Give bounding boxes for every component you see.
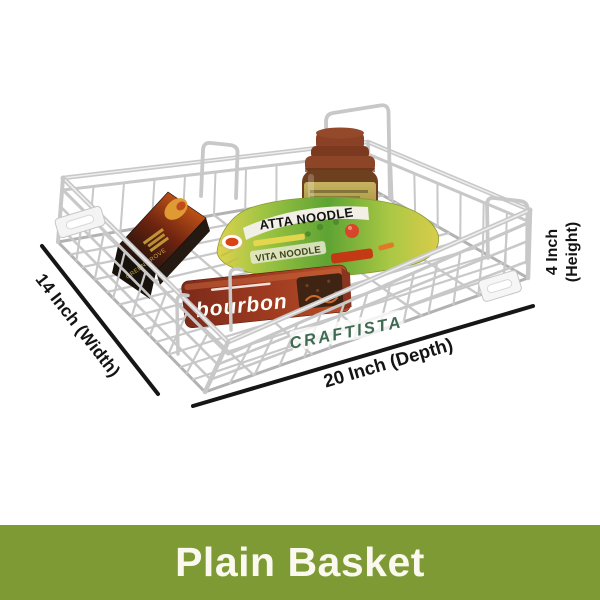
basket-wire xyxy=(414,173,415,213)
basket-wire xyxy=(429,263,437,313)
basket-wire xyxy=(528,210,530,278)
tomato-highlight xyxy=(348,226,352,230)
banner: Plain Basket xyxy=(0,525,600,600)
product-image: GREEN TROVE A xyxy=(0,0,600,600)
brand-logo-center xyxy=(226,238,239,246)
height-dimension-unit: (Height) xyxy=(564,222,581,282)
basket-wire xyxy=(245,168,246,209)
basket-wire xyxy=(214,172,216,215)
jar-knob-top xyxy=(316,128,364,139)
height-dimension-value: 4 Inch xyxy=(544,229,561,275)
pea-graphic xyxy=(305,231,311,237)
basket-wire xyxy=(95,231,105,280)
tomato-graphic xyxy=(345,224,359,238)
jar-label-line xyxy=(310,190,368,193)
basket-illustration: GREEN TROVE A xyxy=(0,0,600,600)
pea-graphic xyxy=(333,219,339,225)
right-bracket xyxy=(478,270,523,303)
pea-graphic xyxy=(317,224,323,230)
basket-wire xyxy=(120,183,124,231)
width-dimension-label: 14 Inch (Width) xyxy=(32,269,125,380)
banner-title: Plain Basket xyxy=(175,539,425,586)
